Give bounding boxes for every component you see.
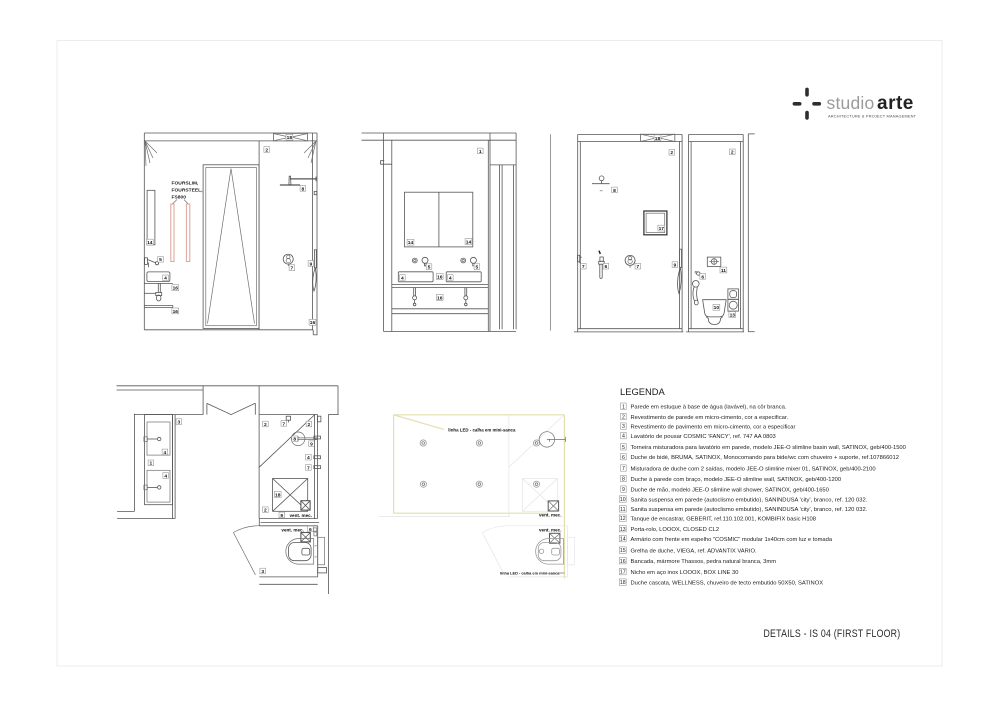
svg-text:4: 4 <box>164 276 167 282</box>
svg-text:Nicho em aço inox LOOOX, BOX L: Nicho em aço inox LOOOX, BOX LINE 30 <box>631 570 739 576</box>
svg-text:16: 16 <box>173 309 179 315</box>
svg-text:Duche à parede com braço, mode: Duche à parede com braço, modelo JEE-O s… <box>631 477 842 483</box>
svg-text:9: 9 <box>310 442 313 448</box>
svg-text:17: 17 <box>659 226 665 232</box>
svg-text:18: 18 <box>275 492 281 498</box>
svg-text:16: 16 <box>437 274 443 280</box>
svg-text:4: 4 <box>164 473 167 479</box>
svg-text:14: 14 <box>466 239 472 245</box>
svg-text:4: 4 <box>449 275 452 281</box>
svg-text:linha LED - calha em mini-sanc: linha LED - calha em mini-sanca <box>448 427 516 432</box>
svg-text:Duche de mão, modelo JEE-O sli: Duche de mão, modelo JEE-O slimline wall… <box>631 487 829 493</box>
svg-text:9: 9 <box>280 513 283 519</box>
svg-text:16: 16 <box>173 286 179 292</box>
svg-text:7: 7 <box>582 264 585 270</box>
svg-text:7: 7 <box>622 466 625 472</box>
svg-text:15: 15 <box>620 548 626 554</box>
svg-text:9: 9 <box>310 261 313 267</box>
svg-text:4: 4 <box>622 434 625 440</box>
svg-text:vent. mec.: vent. mec. <box>539 513 561 518</box>
svg-text:7: 7 <box>282 421 285 427</box>
svg-text:2: 2 <box>308 422 311 428</box>
svg-text:Duche cascata, WELLNESS, chuve: Duche cascata, WELLNESS, chuveiro de tec… <box>631 580 824 586</box>
svg-text:13: 13 <box>620 527 626 533</box>
svg-text:16: 16 <box>310 320 316 326</box>
svg-text:1: 1 <box>622 404 625 410</box>
svg-text:10: 10 <box>714 305 720 311</box>
svg-text:6: 6 <box>622 455 625 461</box>
svg-text:3: 3 <box>622 424 625 430</box>
svg-text:studio: studio <box>827 93 875 113</box>
svg-text:2: 2 <box>264 508 267 514</box>
svg-text:Revestimento de pavimento em m: Revestimento de pavimento em micro-cimen… <box>631 424 796 430</box>
svg-text:5: 5 <box>622 445 625 451</box>
svg-text:9: 9 <box>674 263 677 269</box>
svg-text:16: 16 <box>437 295 443 301</box>
svg-text:Tanque de encastrar, GEBERIT,: Tanque de encastrar, GEBERIT, ref.110.10… <box>631 516 817 522</box>
svg-text:12: 12 <box>620 516 626 522</box>
svg-text:7: 7 <box>307 465 310 471</box>
svg-text:18: 18 <box>620 580 626 586</box>
svg-text:2: 2 <box>731 150 734 156</box>
svg-text:2: 2 <box>670 150 673 156</box>
svg-text:6: 6 <box>605 264 608 270</box>
svg-text:8: 8 <box>622 477 625 483</box>
svg-text:8: 8 <box>613 188 616 194</box>
svg-text:3: 3 <box>261 569 264 575</box>
svg-text:Revestimento de parede em micr: Revestimento de parede em micro-cimento,… <box>631 415 789 421</box>
svg-text:Sanita suspensa em parede (aut: Sanita suspensa em parede (autoclismo em… <box>631 507 868 513</box>
svg-text:14: 14 <box>147 240 153 246</box>
svg-text:10: 10 <box>620 497 626 503</box>
svg-text:2: 2 <box>264 422 267 428</box>
svg-text:FS800: FS800 <box>172 194 187 200</box>
svg-text:11: 11 <box>721 268 726 274</box>
svg-text:13: 13 <box>730 312 736 318</box>
svg-text:linha LED - calha em mini-sanc: linha LED - calha em mini-sanca <box>500 571 560 576</box>
svg-text:4: 4 <box>164 450 167 456</box>
svg-text:11: 11 <box>620 507 625 513</box>
svg-text:Armário com frente em espelho: Armário com frente em espelho "COSMIC" m… <box>631 537 833 543</box>
svg-text:ARCHITECTURE & PROJECT MANAGEM: ARCHITECTURE & PROJECT MANAGEMENT <box>828 114 917 119</box>
svg-text:LEGENDA: LEGENDA <box>620 386 666 397</box>
svg-text:Misturadora de duche com 2 saí: Misturadora de duche com 2 saídas, model… <box>631 466 876 472</box>
svg-text:2: 2 <box>265 147 268 153</box>
svg-text:DETAILS - IS 04 (FIRST FLOOR): DETAILS - IS 04 (FIRST FLOOR) <box>764 628 901 640</box>
svg-text:18: 18 <box>655 136 661 142</box>
svg-text:Sanita suspensa em parede (aut: Sanita suspensa em parede (autoclismo em… <box>631 497 868 503</box>
svg-text:17: 17 <box>620 570 626 576</box>
svg-text:7: 7 <box>636 264 639 270</box>
svg-text:Duche de bidé, BRUMA, SATINOX,: Duche de bidé, BRUMA, SATINOX, Monocoman… <box>631 455 899 461</box>
svg-text:2: 2 <box>622 415 625 421</box>
svg-text:1: 1 <box>479 149 482 155</box>
svg-text:Grelha de duche, VIEGA, ref. A: Grelha de duche, VIEGA, ref. ADVANTIX VA… <box>631 548 757 554</box>
svg-text:14: 14 <box>620 537 626 543</box>
svg-text:Lavatório de pousar COSMIC 'FA: Lavatório de pousar COSMIC 'FANCY', ref.… <box>631 434 776 440</box>
svg-text:5: 5 <box>476 265 479 271</box>
svg-text:vent. mec.: vent. mec. <box>281 527 303 532</box>
svg-text:Porta-rolo, LOOOX, CLOSED CL2: Porta-rolo, LOOOX, CLOSED CL2 <box>631 527 720 533</box>
svg-text:Torneira misturadora para lava: Torneira misturadora para lavatório em p… <box>631 445 906 451</box>
svg-text:14: 14 <box>408 240 414 246</box>
svg-text:Parede em estuque à base de ág: Parede em estuque à base de água (laváve… <box>631 405 787 411</box>
svg-text:6: 6 <box>701 274 704 280</box>
svg-text:FOURSTEEL,: FOURSTEEL, <box>172 187 204 193</box>
svg-text:4: 4 <box>307 455 310 461</box>
svg-text:6: 6 <box>309 527 312 533</box>
svg-text:1: 1 <box>150 461 153 467</box>
svg-text:5: 5 <box>428 265 431 271</box>
svg-text:4: 4 <box>401 275 404 281</box>
svg-text:16: 16 <box>620 559 626 565</box>
svg-text:Bancada, mármore Thassos, pedr: Bancada, mármore Thassos, pedra natural … <box>631 559 777 565</box>
svg-text:9: 9 <box>622 487 625 493</box>
svg-text:5: 5 <box>159 257 162 263</box>
svg-text:3: 3 <box>178 420 181 426</box>
svg-text:7: 7 <box>291 266 294 272</box>
svg-text:8: 8 <box>302 186 305 192</box>
svg-text:vent. mec.: vent. mec. <box>290 513 312 518</box>
svg-text:18: 18 <box>287 135 293 141</box>
svg-text:8: 8 <box>293 437 296 443</box>
svg-text:FOURSLIM,: FOURSLIM, <box>172 180 200 186</box>
svg-text:arte: arte <box>877 93 914 114</box>
svg-text:vent. mec.: vent. mec. <box>539 527 561 532</box>
